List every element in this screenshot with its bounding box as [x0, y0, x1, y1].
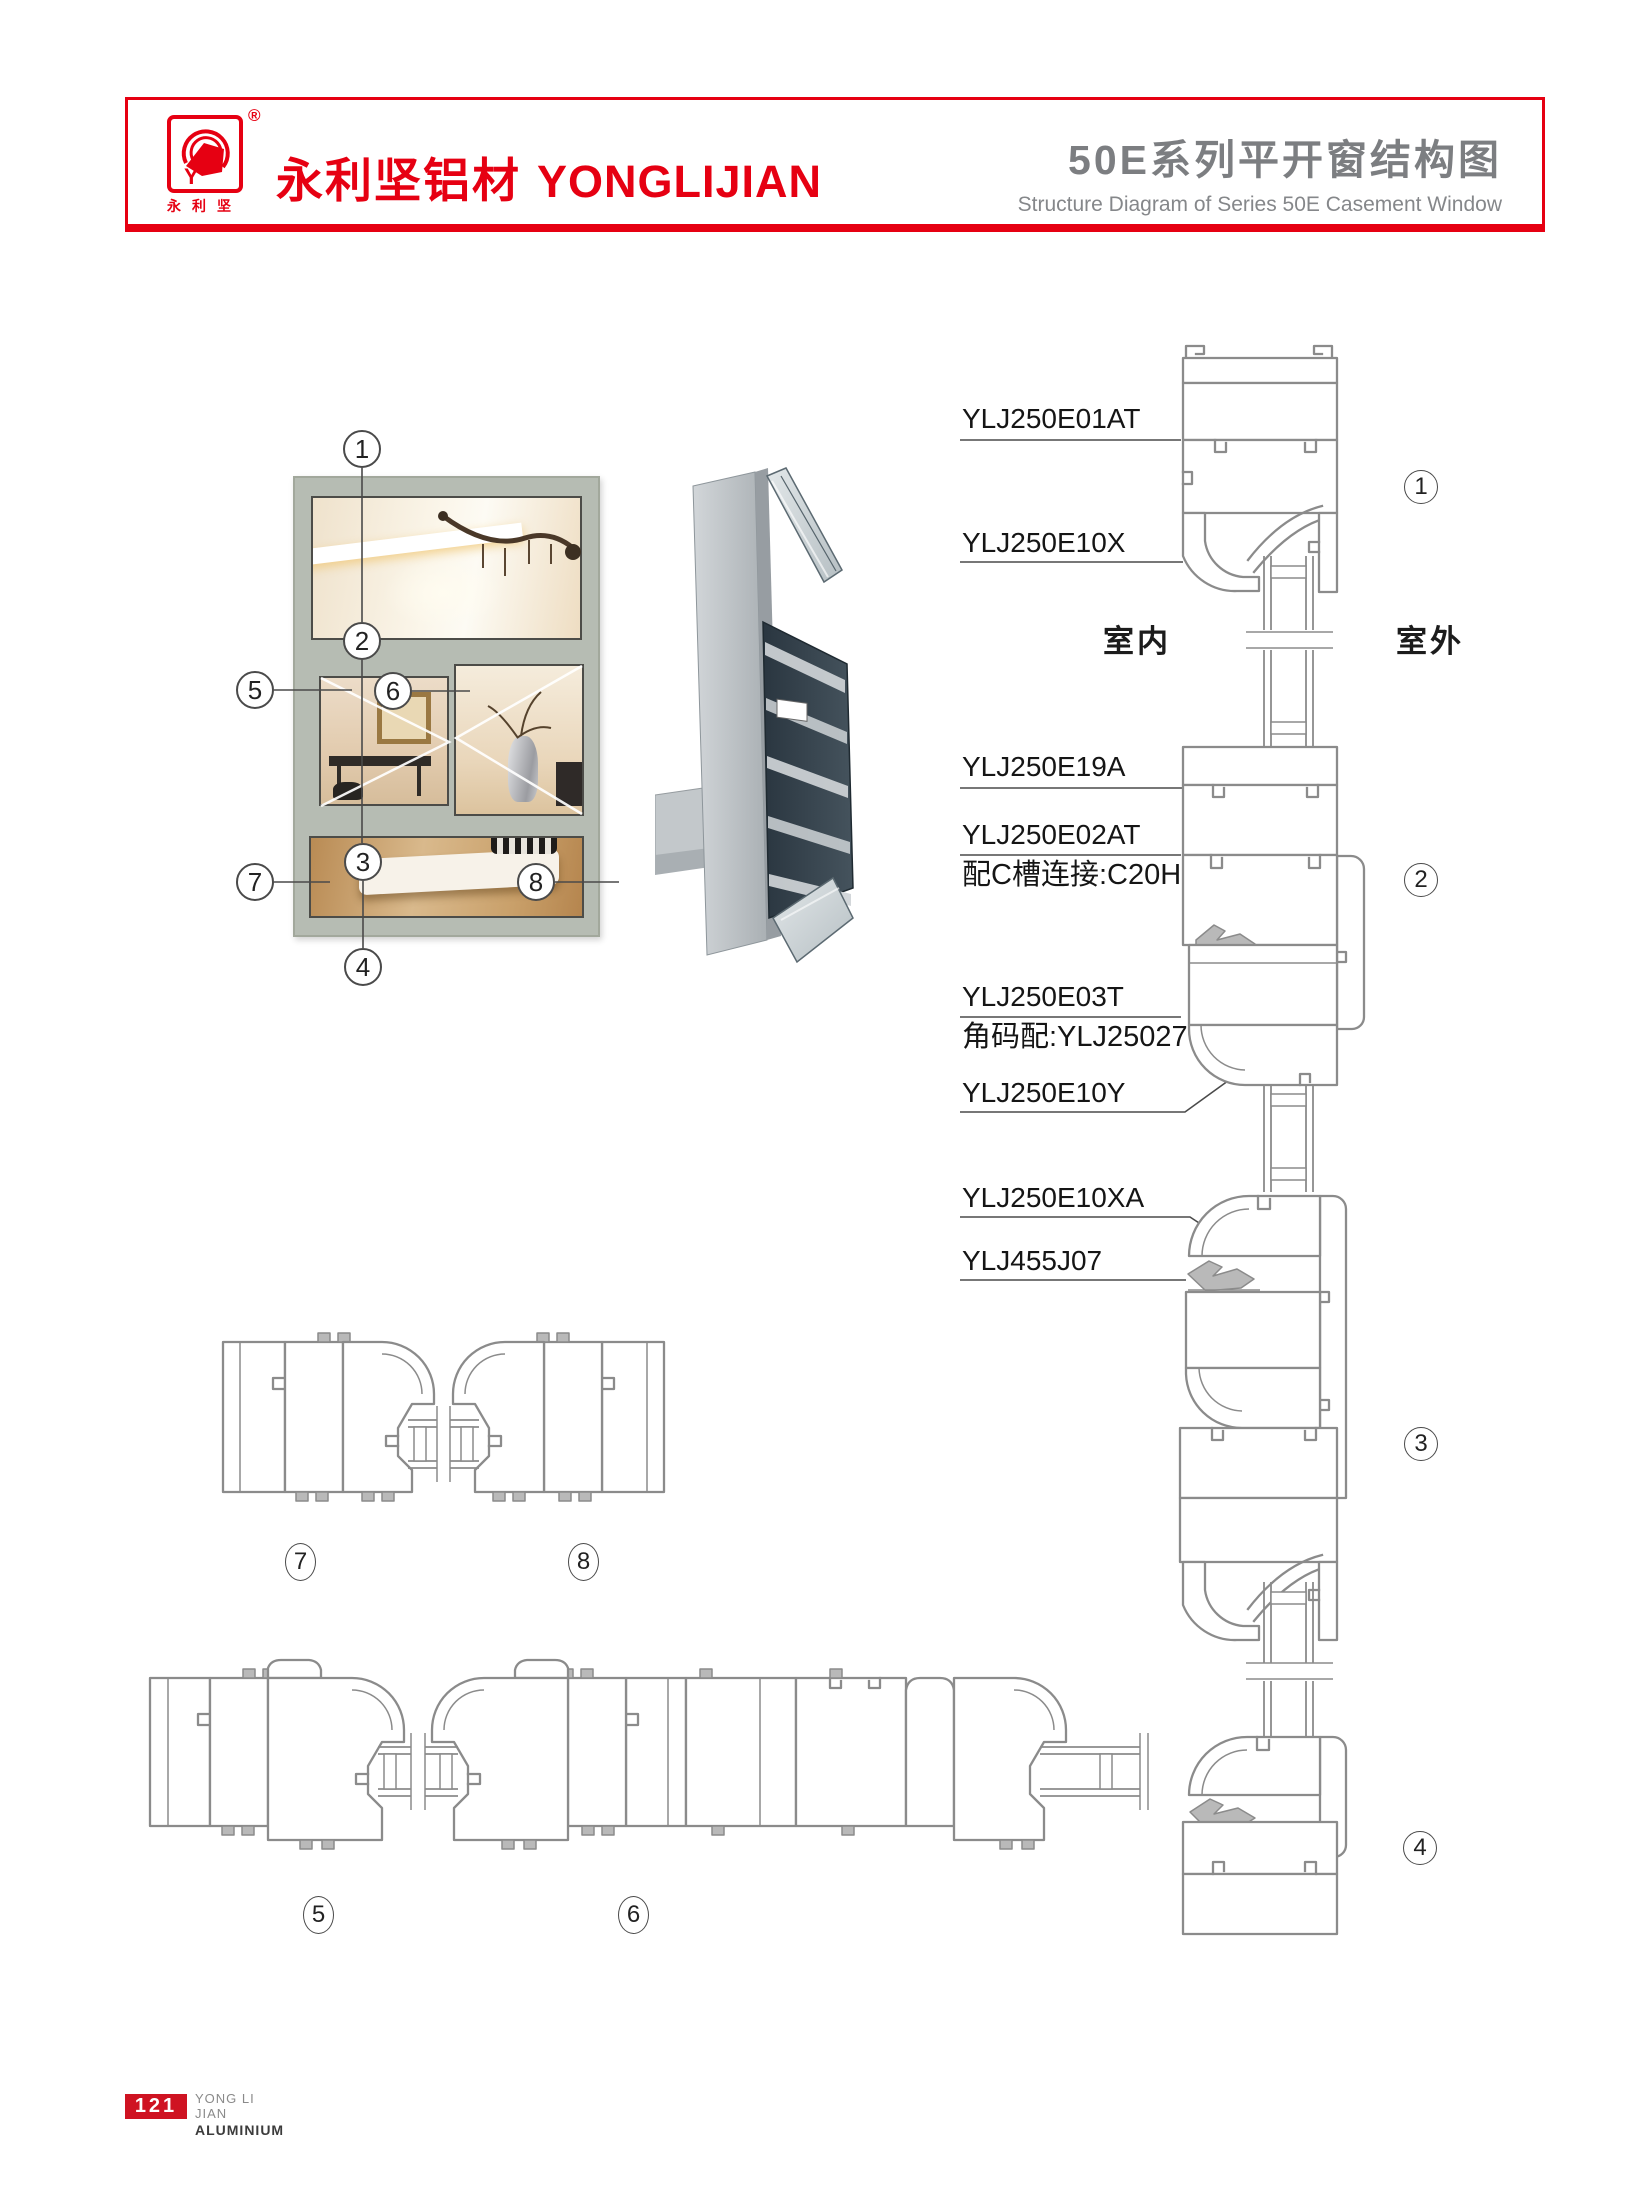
vertical-section-drawing [1180, 346, 1364, 1934]
callout-window-3: 3 [344, 843, 382, 881]
callout-section-4: 4 [1403, 1831, 1437, 1865]
label-YLJ250E02AT: YLJ250E02AT [962, 820, 1141, 851]
page-number-badge: 121 [125, 2094, 187, 2119]
callout-section-2: 2 [1404, 863, 1438, 897]
side-label-indoor: 室内 [1103, 616, 1171, 661]
label-YLJ250E19A: YLJ250E19A [962, 752, 1125, 783]
callout-section-1: 1 [1404, 470, 1438, 504]
callout-plan-5: 5 [303, 1896, 334, 1934]
callout-plan-8: 8 [568, 1543, 599, 1581]
plan-section-5-6 [150, 1660, 1148, 1849]
callout-section-3: 3 [1404, 1427, 1438, 1461]
callout-window-8: 8 [517, 863, 555, 901]
label-YLJ250E10X: YLJ250E10X [962, 528, 1125, 559]
section-drawings [0, 0, 1635, 2203]
label-YLJ250E10XA: YLJ250E10XA [962, 1183, 1144, 1214]
callout-window-6: 6 [374, 672, 412, 710]
callout-window-2: 2 [343, 622, 381, 660]
plan-section-7-8 [223, 1333, 664, 1501]
label-YLJ455J07: YLJ455J07 [962, 1246, 1102, 1277]
label-c-slot-connection: 配C槽连接:C20H [962, 860, 1181, 892]
label-YLJ250E01AT: YLJ250E01AT [962, 404, 1141, 435]
label-YLJ250E03T: YLJ250E03T [962, 982, 1124, 1013]
company-line2: ALUMINIUM [195, 2122, 284, 2138]
company-name: YONG LI JIAN ALUMINIUM [195, 2092, 284, 2138]
side-label-outdoor: 室外 [1396, 616, 1464, 661]
callout-window-7: 7 [236, 863, 274, 901]
callout-window-5: 5 [236, 671, 274, 709]
callout-window-4: 4 [344, 948, 382, 986]
label-corner-code: 角码配:YLJ25027 [962, 1022, 1188, 1054]
callout-window-1: 1 [343, 430, 381, 468]
callout-plan-7: 7 [285, 1543, 316, 1581]
window-leader-lines [274, 468, 619, 948]
label-YLJ250E10Y: YLJ250E10Y [962, 1078, 1125, 1109]
callout-plan-6: 6 [618, 1896, 649, 1934]
company-line1: YONG LI JIAN [195, 2092, 284, 2122]
